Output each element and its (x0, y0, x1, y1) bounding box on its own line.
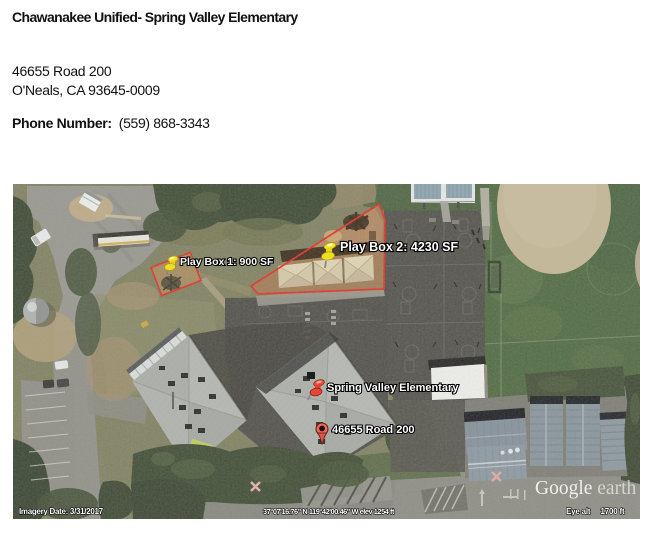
svg-text:Play Box 2: 4230 SF: Play Box 2: 4230 SF (340, 240, 458, 254)
svg-text:46655 Road 200: 46655 Road 200 (332, 424, 415, 436)
svg-text:37°07'16.76" N 119°42'00.46" W: 37°07'16.76" N 119°42'00.46" W elev 1254… (263, 507, 395, 516)
svg-text:Spring Valley Elementary: Spring Valley Elementary (327, 382, 459, 394)
svg-text:Eye alt 1700 ft: Eye alt 1700 ft (566, 507, 625, 516)
svg-text:Imagery Date: 3/31/2017: Imagery Date: 3/31/2017 (19, 507, 104, 516)
svg-text:Google earth: Google earth (535, 478, 637, 499)
svg-text:Play Box 1: 900 SF: Play Box 1: 900 SF (180, 256, 274, 268)
